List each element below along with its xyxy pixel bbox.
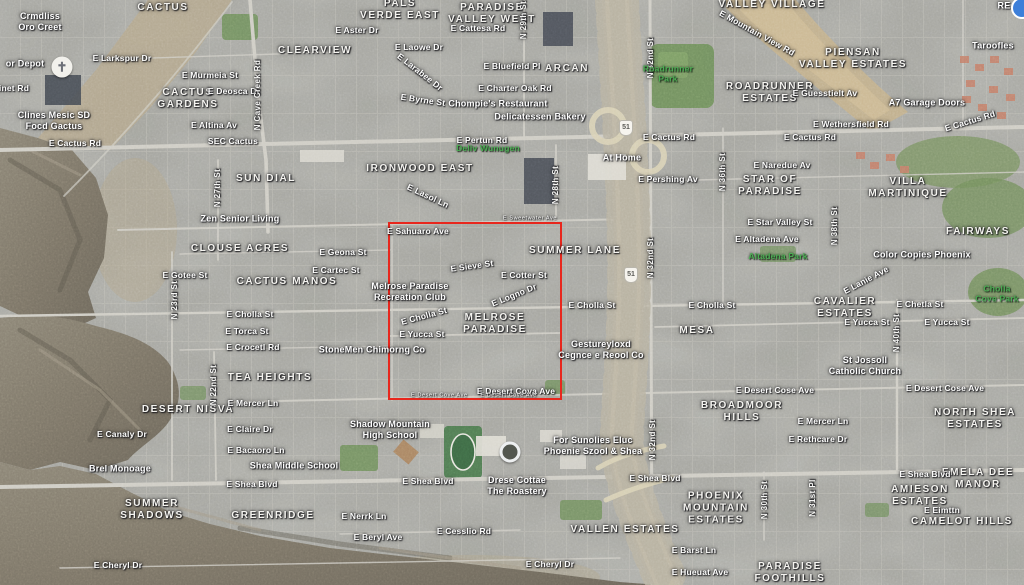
map-label: E Murmeia St — [182, 70, 238, 80]
map-label: E Beryl Ave — [354, 532, 403, 542]
map-label: N 30th St — [760, 481, 770, 519]
map-label: Shea Middle School — [250, 461, 339, 472]
map-label: PIENSAN VALLEY ESTATES — [799, 47, 907, 71]
map-label: N 31st Pl — [808, 479, 818, 516]
map-label: Chompie's Restaurant — [448, 99, 547, 110]
map-label: N 32nd St — [646, 238, 656, 279]
map-label: Cholla Cove Park — [975, 284, 1018, 305]
map-label: Brel Monoage — [89, 464, 151, 475]
map-label: E Geona St — [319, 247, 366, 257]
map-label: E Cheryl Dr — [94, 560, 143, 570]
map-label: CLEARVIEW — [278, 45, 352, 57]
map-label: E Cartec St — [312, 265, 360, 275]
map-label: E Gotee St — [163, 270, 208, 280]
map-label: Deliv Wunugen — [456, 143, 520, 153]
map-label: E Naredue Av — [753, 160, 810, 170]
map-label: N 29th St — [519, 1, 529, 39]
map-label: N 40th St — [892, 314, 902, 352]
map-label: E Mercer Ln — [798, 416, 849, 426]
map-label: Drese Cottae The Roastery — [487, 475, 546, 497]
map-label: E Cattesa Rd — [451, 23, 506, 33]
sr51-route-shield[interactable]: 51 — [624, 267, 638, 283]
map-label: E Cholla St — [226, 309, 273, 319]
map-label: N 36th St — [718, 153, 728, 191]
map-label: E Charter Oak Rd — [478, 83, 552, 93]
map-label: Taroofles — [972, 41, 1014, 52]
map-label: E Cactus Rd — [643, 132, 695, 142]
map-label: TEA HEIGHTS — [228, 372, 312, 384]
map-label: Shadow Mountain High School — [350, 419, 430, 441]
map-label: SEC Cactus — [208, 136, 258, 146]
map-label: E Laowe Dr — [395, 42, 443, 52]
map-label: E Lasol Ln — [405, 182, 450, 210]
map-label: PHOENIX MOUNTAIN ESTATES — [683, 491, 749, 528]
map-label: ROADRUNNER ESTATES — [726, 81, 814, 105]
map-label: E Cactus Rd — [784, 132, 836, 142]
map-label: N Cave Creek Rd — [253, 60, 263, 130]
map-label: SUN DIAL — [236, 173, 296, 185]
map-label: E Altadena Ave — [735, 234, 799, 244]
map-label: E Wethersfield Rd — [813, 119, 889, 129]
map-label: N 32nd St — [648, 420, 658, 461]
map-label: E Bluefield Pl — [483, 61, 540, 71]
map-label: PARADISE VALLEY WEST — [448, 2, 536, 26]
map-label: E Desert Cose Ave — [906, 383, 984, 393]
highlight-rectangle — [388, 222, 562, 400]
map-label: Crmdliss Oro Creet — [18, 11, 61, 33]
map-label: E Deosca Dr — [208, 86, 260, 96]
map-label: DESERT NISVA — [142, 404, 234, 416]
map-label: ARCAN — [545, 63, 589, 75]
map-label: E Nerrk Ln — [342, 511, 387, 521]
map-label: A7 Garage Doors — [889, 98, 966, 109]
map-label: E Chetla St — [896, 299, 943, 309]
map-label: E Byrne St — [400, 92, 446, 109]
sr51-route-shield[interactable]: 51 — [619, 120, 633, 136]
map-label: E Desert Cose Ave — [736, 385, 814, 395]
map-label: At Home — [603, 153, 641, 164]
map-label: VALLEN ESTATES — [570, 524, 679, 536]
map-label: E Pertun Rd — [457, 135, 508, 145]
map-label: For Sunolies Eluc Phoenie Szool & Shea — [544, 435, 643, 457]
map-label: Zen Senior Living — [201, 214, 280, 225]
map-label: VALLEY VILLAGE — [718, 0, 825, 11]
map-label: E Mercer Ln — [228, 398, 279, 408]
map-label: E Mountain View Rd — [717, 8, 796, 58]
map-label: NORTH SHEA ESTATES — [934, 407, 1016, 431]
map-label: E Cactus Rd — [49, 138, 101, 148]
map-label: E Eimttn — [924, 505, 960, 515]
map-label: E Bacaoro Ln — [227, 445, 284, 455]
map-label: E Shea Blvd — [226, 479, 277, 489]
map-label: CAMELOT HILLS — [911, 516, 1013, 528]
map-label: Gestureyloxd Cegnce e Reool Co — [558, 339, 643, 361]
map-label: N 32nd St — [646, 38, 656, 79]
map-label: CAVALIER ESTATES — [814, 296, 876, 320]
map-label: Color Copies Phoenix — [873, 250, 971, 261]
map-label: E Larabee Dr — [395, 51, 445, 93]
map-label: E Larkspur Dr — [93, 53, 152, 63]
map-label: E Altina Av — [191, 120, 237, 130]
map-label: CACTUS MANOS — [237, 276, 338, 288]
map-label: RE — [998, 1, 1011, 12]
map-label: E Torca St — [225, 326, 268, 336]
map-label: E Aster Dr — [335, 25, 378, 35]
map-label: VILLA MARTINIQUE — [868, 176, 947, 200]
map-label: BROADMOOR HILLS — [701, 400, 783, 424]
map-label: E Hueuat Ave — [672, 567, 729, 577]
map-label: AMIESON ESTATES — [891, 484, 949, 508]
map-label: N 23rd St — [170, 281, 180, 320]
church-marker[interactable]: ✝ — [52, 57, 73, 78]
map-label: SUMMER SHADOWS — [120, 498, 183, 522]
map-label: E Guesstielt Av — [793, 88, 858, 98]
map-label: N 38th St — [830, 207, 840, 245]
map-label: N 28th St — [551, 166, 561, 204]
map-label: E Star Valley St — [747, 217, 812, 227]
map-label: Altadena Park — [748, 251, 807, 261]
map-label: MESA — [679, 325, 714, 337]
map-label: EMELA DEE MANOR — [942, 467, 1014, 491]
map-label: E Lanie Ave — [842, 264, 891, 297]
map-label: E Canaly Dr — [97, 429, 147, 439]
map-label: N 22nd St — [209, 365, 219, 406]
map-label: IRONWOOD EAST — [366, 163, 473, 175]
map-label: PARADISE FOOTHILLS — [754, 561, 825, 585]
map-label: E Shea Blvd — [629, 473, 680, 483]
map-label: Roadrunner Park — [643, 64, 693, 85]
roastery-logo-marker[interactable] — [500, 442, 521, 463]
map-label: Clines Mesic SD Focd Gactus — [18, 110, 91, 132]
map-label: E Pershing Av — [638, 174, 698, 184]
map-label: STAR OF PARADISE — [738, 174, 802, 198]
map-label: N 27th St — [213, 169, 223, 207]
map-label: E Cholla St — [568, 300, 615, 310]
map-label: E Yucca St — [924, 317, 969, 327]
map-label: E Cesslio Rd — [437, 526, 491, 536]
map-label: E Cactus Rd — [943, 108, 996, 133]
map-label: E Claire Dr — [227, 424, 273, 434]
map-label: E Cheryl Dr — [526, 559, 575, 569]
map-label: St Jossoll Catholic Church — [829, 355, 902, 377]
map-label: FAIRWAYS — [946, 226, 1010, 238]
map-label: E Shea Blvd — [899, 469, 950, 479]
map-label: GREENRIDGE — [231, 510, 314, 522]
satellite-map[interactable]: CACTUSPALS VERDE EASTPARADISE VALLEY WES… — [0, 0, 1024, 585]
map-label: Delicatessen Bakery — [494, 112, 585, 123]
map-label: E Rethcare Dr — [789, 434, 848, 444]
map-label: PALS VERDE EAST — [360, 0, 440, 22]
map-label: E Shea Blvd — [402, 476, 453, 486]
map-label: E Cholla St — [688, 300, 735, 310]
map-label: CLOUSE ACRES — [191, 243, 289, 255]
edge-poi-marker[interactable] — [1011, 0, 1024, 19]
map-label: E Barst Ln — [672, 545, 717, 555]
map-label: or Depot — [6, 59, 45, 70]
map-label: CACTUS — [137, 2, 188, 14]
map-label: E Crocetl Rd — [226, 342, 279, 352]
map-label: E Yucca St — [844, 317, 889, 327]
map-label: inet Rd — [0, 83, 29, 93]
map-label: CACTUS GARDENS — [157, 87, 218, 111]
